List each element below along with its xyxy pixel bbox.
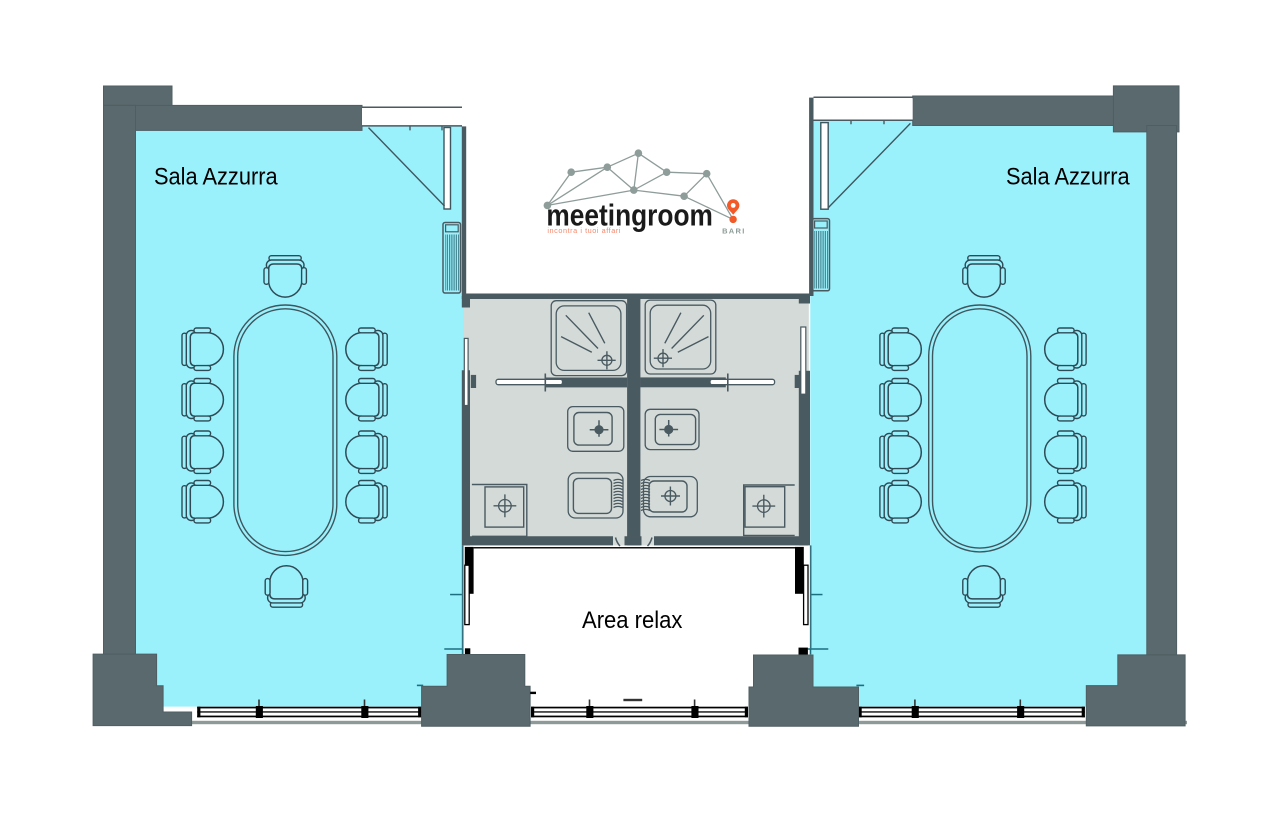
svg-text:Area relax: Area relax [582,606,683,633]
svg-text:Sala Azzurra: Sala Azzurra [154,162,278,189]
svg-text:BARI: BARI [722,227,746,236]
svg-text:Sala Azzurra: Sala Azzurra [1006,162,1130,189]
svg-text:incontra i tuoi affari: incontra i tuoi affari [547,226,621,235]
